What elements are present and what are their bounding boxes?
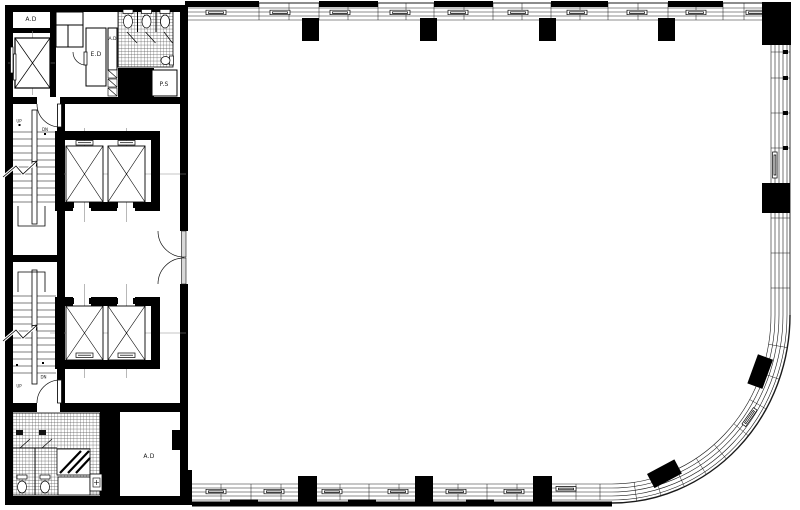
service-elevator-door [14,54,17,80]
bottom-operable-windows [206,487,576,494]
window-wall-top [185,1,790,20]
double-door-swing [158,231,184,257]
service-elevator-door [11,47,14,73]
room-label-ad-top-left: A.D [25,16,36,23]
top-operable-windows [206,10,766,15]
restroom-lower [12,413,102,495]
columns [180,2,791,504]
window-wall-curve [612,315,790,503]
window-wall-right [771,3,790,315]
elevator-counterweight [76,141,135,146]
double-door-leaf [182,258,187,284]
door-swing [37,104,60,127]
column [298,476,317,502]
column [533,476,552,504]
floor-plan-drawing: A.D E.D A.D P.S A.D UP DN DN UP [0,0,800,510]
top-spandrel-panels [185,1,723,7]
door-leaf [84,52,87,65]
column [762,183,790,213]
stair-label-dn: DN [42,127,48,132]
column [302,18,319,41]
column [415,476,433,502]
room-label-ps: P.S [160,81,169,88]
door-leaf [58,104,62,127]
stair-label-up: UP [16,384,22,389]
room-ad-duct-walls [108,28,117,70]
room-label-ad-bottom: A.D [143,453,154,460]
service-elevator [8,31,55,95]
janitor-fixtures [108,70,117,96]
room-label-ad-duct: A.D [109,36,117,42]
stair-label-dn: DN [40,375,46,380]
curve-column [647,459,682,488]
stair-label-up: UP [16,119,22,124]
curve-operable-window [742,408,757,427]
column [420,18,437,41]
urinal [16,430,23,435]
double-door-swing [158,258,184,284]
door-leaf [58,380,62,403]
elevator-bank-upper [50,128,186,222]
elevator-bank-lower [50,284,186,378]
urinal [39,430,46,435]
column [539,18,556,41]
elevator-counterweight [76,353,135,358]
floor-plan: A.D E.D A.D P.S A.D UP DN DN UP [0,0,800,510]
slop-sink [90,474,102,491]
door-swing [37,380,60,403]
right-operable-window [773,152,778,178]
double-door-leaf [182,231,187,257]
curve-column [747,354,773,389]
room-label-ed: E.D [91,51,102,58]
corner-column [762,2,791,45]
column [658,18,675,41]
